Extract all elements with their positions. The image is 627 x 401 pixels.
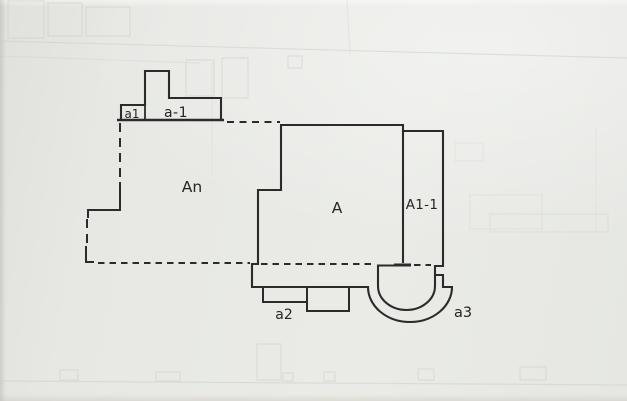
label-an: An <box>182 178 202 196</box>
paper-photo: a1 a-1 An A A1-1 a2 a3 <box>0 0 627 401</box>
boundary-corner-solid <box>86 246 94 262</box>
lettering-layer: a1 a-1 An A A1-1 a2 a3 <box>125 105 473 323</box>
label-a-1: a-1 <box>164 105 188 121</box>
label-a: A <box>332 199 343 217</box>
building-a-outline <box>252 125 452 322</box>
paper-edge-bottom <box>0 394 627 401</box>
plan-drawing: a1 a-1 An A A1-1 a2 a3 <box>0 0 627 401</box>
bleedthrough-ghost-lines <box>0 0 627 385</box>
boundary-hook-solid <box>88 182 120 218</box>
label-a1-1: A1-1 <box>406 197 439 213</box>
apse-inner-wall <box>378 266 435 311</box>
label-a3: a3 <box>454 305 472 321</box>
label-a2: a2 <box>275 307 293 323</box>
ink-layer <box>86 71 452 322</box>
label-a1: a1 <box>125 107 140 121</box>
